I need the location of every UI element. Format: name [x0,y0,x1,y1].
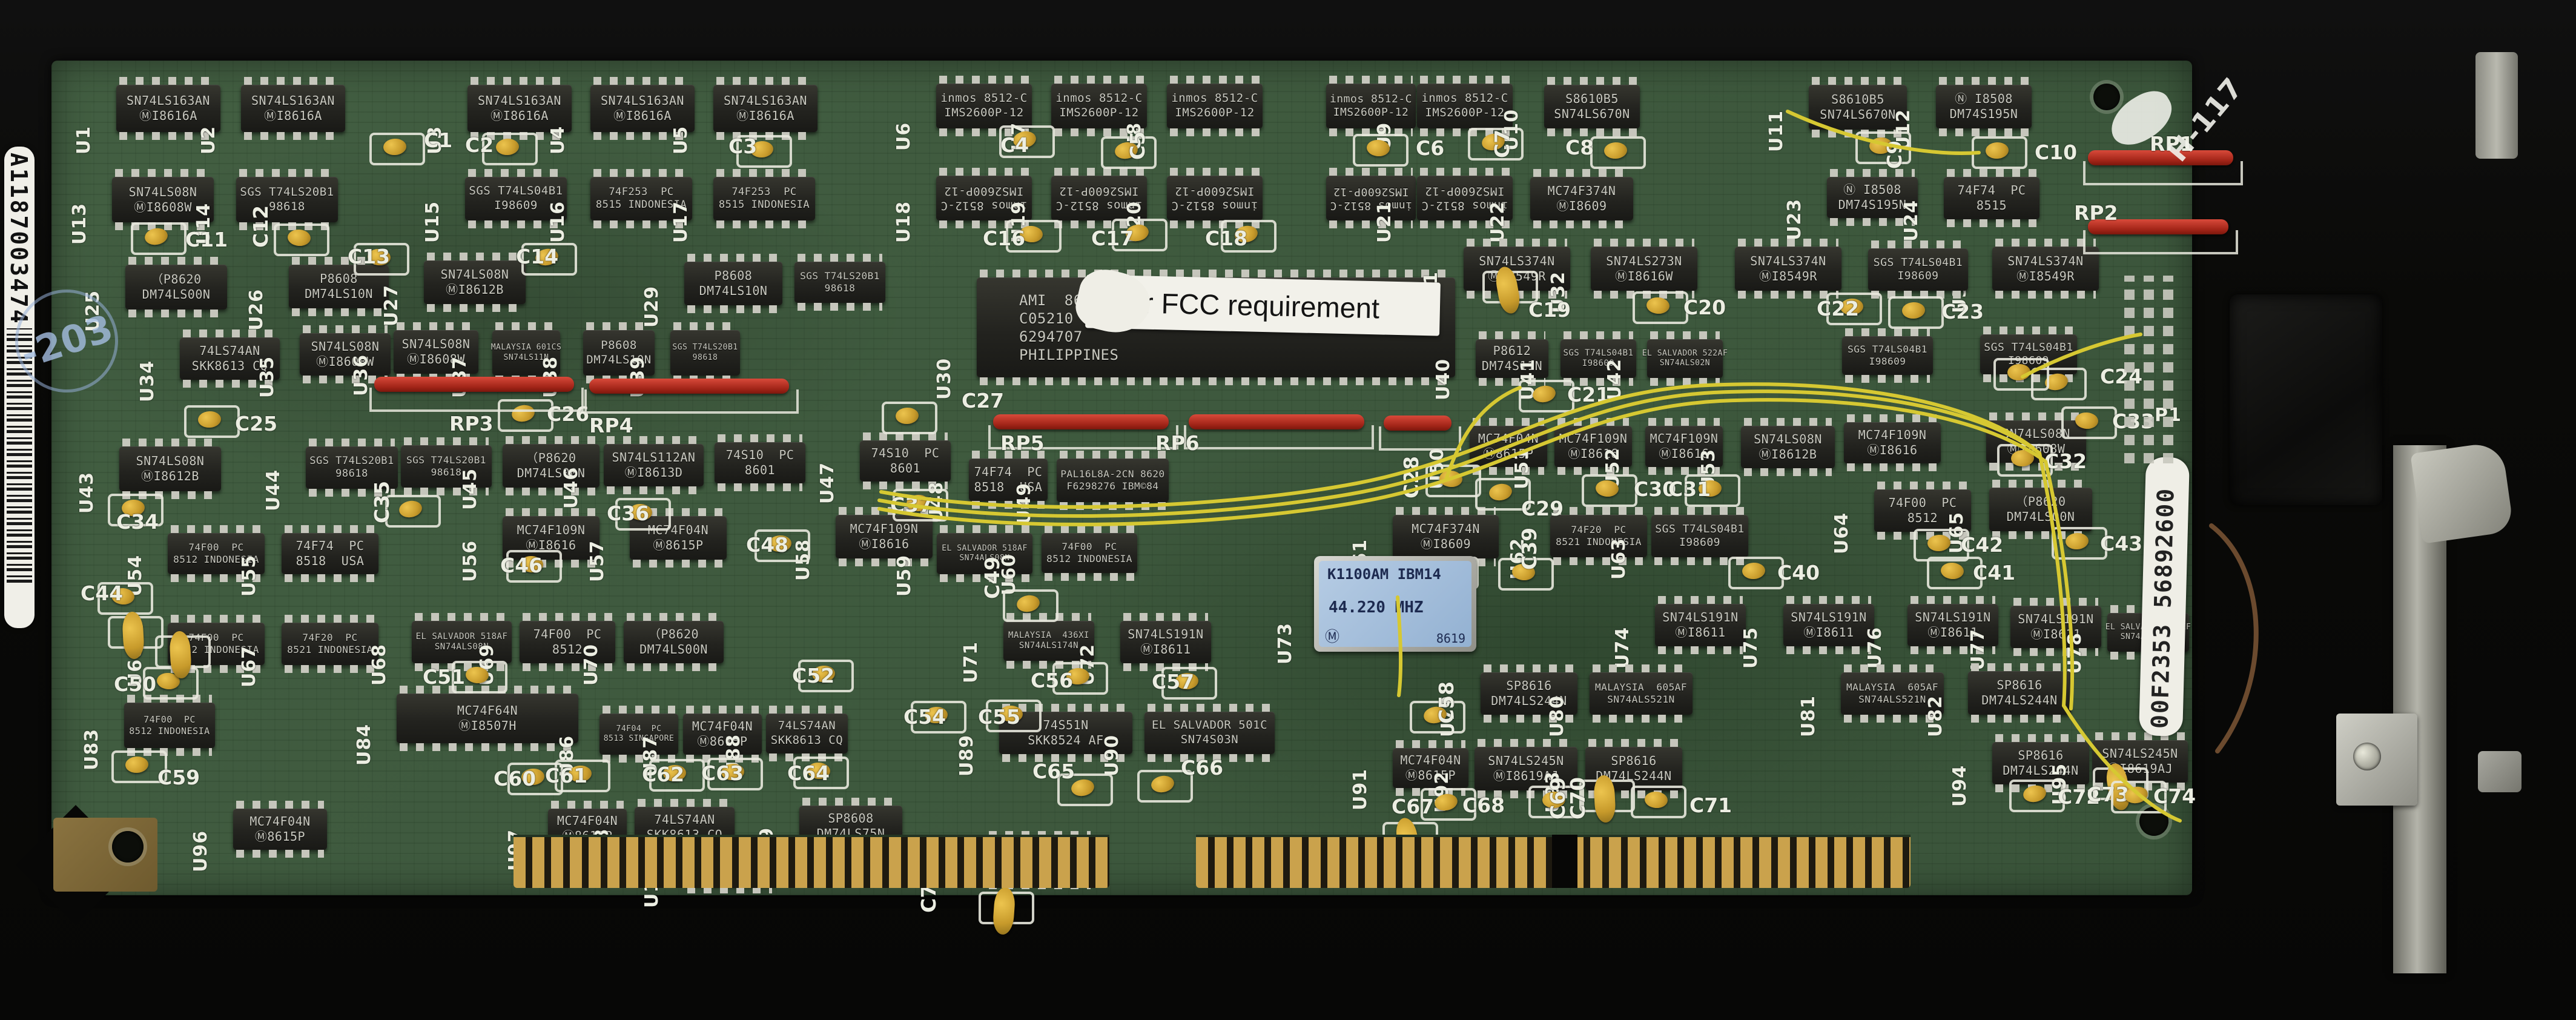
chip-markings: SN74LS163ANⓂI8616A [251,93,335,124]
chip-pins [506,436,596,444]
chip-markings: 74F74 PC8518 USA [296,538,365,569]
chip-markings: SN74LS08NⓂI8612B [136,454,205,484]
chip-text-line: 74LS74AN [778,719,836,734]
serial-number-label: 00F2353 56892600 [2139,457,2190,737]
chip-text-line: MC74F04N [692,719,753,734]
chip-text-line: ⓂI8609 [1556,199,1607,214]
chip-pins [1947,169,2036,177]
chip-text-line: MC74F64N [457,703,518,718]
chip-ref-designator: U68 [369,644,390,686]
chip-text-line: PAL16L8A-2CN 8620 [1060,468,1164,480]
chip-pins [1844,664,1941,672]
chip-text-line: SN74ALS521N [1858,694,1926,706]
chip-text-line: ⓂI8507H [458,718,517,734]
chip-text-line: MC74F04N [1478,431,1539,446]
chip-pins [1588,739,1679,747]
chip-text-line: 8513 SINGAPORE [604,734,675,744]
chip-pins [798,254,882,262]
chip-pins [1420,76,1510,84]
chip-text-line: SGS T74LS04B1 [1984,341,2073,355]
chip-markings: SN74LS163ANⓂI8616A [127,93,210,124]
cap-ref-designator: C35 [370,481,394,523]
chip-pins [769,706,845,714]
chip-text-line: EL SALVADOR 501C [1152,718,1267,733]
chip-pins [1871,240,1965,248]
chip-pins [1744,418,1832,426]
chip-text-line: IMS2600P-12 [1175,184,1254,198]
chip-markings: inmos 8512-CIMS2600P-12 [1330,93,1412,120]
chip-text-line: I98609 [1869,356,1906,368]
ic-chip: MC74F04NⓂ8615P [683,714,762,755]
chip-pins [285,665,375,673]
chip-pins [236,850,324,858]
chip-text-line: SGS T74LS20B1 [240,185,334,200]
chip-pins [1170,128,1260,136]
chip-text-line: SKK8613 CQ [771,734,843,748]
cap-ref-designator: C12 [249,205,272,248]
chip-pins [1971,715,2068,723]
chip-text-line: ⓂI8611 [1140,642,1191,657]
cap-ref-designator: C41 [1973,561,2015,585]
chip-pins [1830,169,1915,177]
chip-markings: SGS T74LS04B1I98609 [1848,343,1927,368]
chip-text-line: 74S10 PC [726,448,794,463]
chip-pins [171,525,262,533]
ic-chip: 74S10 PC8601 [715,442,805,483]
cap-ref-designator: C13 [348,245,390,268]
chip-text-line: I98609 [1679,536,1720,550]
chip-text-line: S8610B5 [1565,91,1619,107]
chip-text-line: ⓂI8609 [1421,537,1471,552]
cap-ref-designator: C5 [1126,131,1149,160]
chip-text-line: Ⓝ I8508 [1955,91,2013,107]
chip-pins [400,743,575,751]
rpack-ref-designator: RP3 [449,412,494,435]
chip-pins [638,799,732,807]
chip-pins [303,325,388,333]
chip-pins [2013,598,2098,606]
chip-ref-designator: U94 [1949,765,1970,807]
chip-ref-designator: U45 [460,468,481,510]
chip-pins [397,322,475,330]
chip-text-line: inmos 8512-C [1055,91,1142,106]
chip-markings: （P8620DM74LS00N [142,272,211,302]
ic-chip: 74F74 PC8515 [1944,177,2039,219]
chip-text-line: MC74F04N [557,813,618,829]
cap-ref-designator: C37 [890,493,933,517]
cap-ref-designator: C48 [746,533,788,557]
chip-text-line: SN74LS245N [1488,753,1564,769]
chip-text-line: SGS T74LS20B1 [406,454,486,466]
chip-text-line: SN74LS163AN [127,93,210,108]
chip-text-line: MALAYSIA 436XI [1008,631,1089,641]
chip-text-line: 98618 [269,200,305,214]
chip-pins [244,77,342,85]
cap-ref-designator: C68 [1462,793,1505,817]
chip-pins [239,169,335,177]
chip-pins [633,560,724,568]
chip-markings: 74F74 PC8515 [1958,183,2026,213]
chip-text-line: SP8616 [1506,678,1551,694]
chip-pins [1420,168,1510,176]
chip-text-line: ⓂI8616W [1615,269,1673,284]
chip-pins [1648,418,1720,426]
chip-text-line: 74F00 PC [188,541,243,554]
chip-text-line: ⓂI8616A [613,108,672,124]
chip-pins [1847,463,1938,471]
cap-ref-designator: C34 [116,510,159,534]
chip-markings: SN74LS112ANⓂI8613D [612,450,696,480]
chip-pins [607,486,701,494]
ic-chip: （P8620DM74LS00N [503,444,599,488]
ic-chip: MC74F374NⓂI8609 [1530,177,1633,220]
ic-chip: SN74LS191NⓂI8611 [1120,621,1211,663]
cap-ref-designator: C65 [1032,760,1075,783]
chip-ref-designator: U67 [239,646,260,687]
chip-pins [1473,418,1544,426]
chip-ref-designator: U46 [561,467,582,509]
chip-pins [593,169,689,177]
chip-pins [586,322,652,330]
chip-ref-designator: U18 [893,201,914,243]
chip-text-line: C05210 [1019,310,1074,328]
chip-text-line: Ⓜ8615P [653,538,703,553]
ic-chip: 74F74 PC8518 USA [969,459,1048,501]
corner-gold-pad [53,818,157,892]
chip-pins [1054,76,1144,84]
chip-text-line: SN74LS08N [1754,432,1822,447]
chip-text-line: 8518 USA [296,554,365,569]
chip-ref-designator: U21 [1374,201,1395,243]
cap-ref-designator: C23 [1941,300,1984,323]
chip-text-line: SGS T74LS20B1 [309,455,394,468]
chip-ref-designator: U29 [641,286,662,328]
chip-pins [1553,507,1644,515]
chip-pins [119,77,217,85]
ic-chip: SGS T74LS20B198618 [670,330,740,376]
connector-thumbscrew [2478,751,2522,792]
chip-pins [1329,220,1413,228]
chip-text-line: 8515 [1977,198,2007,213]
cap-ref-designator: C36 [607,502,649,525]
ic-chip: MALAYSIA 605AFSN74ALS521N [1590,672,1693,715]
chip-text-line: SGS T74LS20B1 [672,343,738,353]
chip-pins [1650,378,1720,386]
ic-chip: inmos 8512-CIMS2600P-12 [1326,84,1416,128]
ic-chip: Ⓝ I8508DM74S195N [1936,85,2032,128]
ic-chip: inmos 8512-CIMS2600P-12 [1417,84,1513,128]
chip-pins [468,169,564,177]
ic-chip: SP8616DM74LS244N [1992,742,2089,784]
chip-ref-designator: U71 [960,641,982,683]
chip-text-line: SGS T74LS04B1 [1848,343,1927,356]
cap-ref-designator: C42 [1961,533,2003,557]
ic-chip: S8610B5SN74LS670N [1544,85,1640,128]
ic-chip: MC74F109NⓂI8616 [1844,422,1941,463]
chip-text-line: ⓂI8613D [625,465,683,480]
mounting-hole-bottom-left [112,831,144,863]
ic-chip: SGS T74LS04B1I98609 [1868,248,1968,291]
chip-text-line: inmos 8512-C [1171,198,1258,213]
chip-pins [415,613,509,621]
chip-pins [1845,328,1930,336]
chip-pins [1148,704,1272,712]
cap-ref-designator: C59 [157,766,200,789]
rpack-ref-designator: RP4 [589,414,633,437]
chip-ref-designator: U11 [1766,110,1787,152]
cap-ref-designator: C8 [1565,136,1594,159]
chip-ref-designator: U4 [547,126,569,154]
chip-pins [1847,414,1938,422]
chip-ref-designator: U24 [1901,200,1922,242]
chip-markings: SN74LS08NⓂI8612B [1754,432,1822,462]
chip-pins [122,439,218,446]
cap-ref-designator: C31 [1668,477,1711,501]
chip-markings: SN74LS163ANⓂI8616A [724,93,807,124]
chip-text-line: P8608 [601,339,637,353]
chip-pins [1650,331,1720,339]
chip-pins [183,330,277,337]
ic-chip: S8610B5SN74LS670N [1809,85,1907,130]
crystal-part-number: K1100AM IBM14 [1327,566,1441,583]
crystal-face: K1100AM IBM14 44.220 MHZ Ⓜ 8619 [1319,561,1471,647]
crystal-ref: U73 [1275,623,1296,664]
chip-text-line: MC74F374N [1412,522,1480,537]
ic-chip: 74LS74ANSKK8613 CQ [766,714,848,753]
cap-ref-designator: C17 [1091,227,1134,250]
chip-text-line: SN74LS08N [311,339,380,354]
chip-text-line: 74F20 PC [1571,524,1626,536]
chip-markings: SN74LS191NⓂI8611 [1662,610,1738,640]
chip-markings: SN74LS163ANⓂI8616A [601,93,684,124]
chip-text-line: DM74LS244N [1981,693,2057,708]
ic-chip: MC74F374NⓂI8609 [1393,515,1499,558]
resistor-pack [1189,414,1364,429]
chip-pins [1564,331,1633,339]
chip-ref-designator: U57 [587,540,608,582]
chip-text-line: IMS2600P-12 [1059,184,1138,198]
chip-pins [128,257,224,265]
chip-text-line: 8601 [890,461,920,476]
chip-text-line: MC74F374N [1548,184,1616,199]
chip-ref-designator: U13 [69,203,90,245]
chip-markings: inmos 8512-CIMS2600P-12 [1171,184,1258,213]
chip-markings: SGS T74LS04B1I98609 [1655,523,1744,550]
chip-pins [1654,507,1745,515]
chip-text-line: DM74LS10N [305,286,373,302]
cap-ref-designator: C61 [545,764,587,787]
cap-ref-designator: C39 [1518,528,1541,570]
barcode-text: A1187003474 [5,153,32,325]
chip-text-line: SN74LS670N [1820,107,1895,122]
chip-text-line: ⓂI8616 [859,537,909,552]
chip-text-line: IMS2600P-12 [944,184,1023,198]
chip-text-line: Ⓝ I8508 [1843,182,1901,197]
chip-pins [506,508,596,516]
chip-pins [1983,326,2074,334]
chip-ref-designator: U44 [263,469,284,511]
chip-text-line: ⓂI8616A [139,108,197,124]
edge-connector-tab [1196,835,1911,888]
chip-ref-designator: U1 [73,126,94,154]
chip-markings: SN74LS374NⓂI8549R [2007,254,2083,284]
chip-text-line: MALAYSIA 601CS [491,343,562,353]
cap-ref-designator: C4 [1000,133,1029,157]
ic-chip: 74F253 PC8515 INDONESIA [713,177,815,220]
chip-text-line: 6294707 [1019,328,1083,346]
chip-ref-designator: U76 [1864,627,1886,669]
chip-ref-designator: U2 [198,126,219,154]
cap-ref-designator: C56 [1031,669,1073,692]
chip-pins [603,706,675,714]
chip-text-line: 98618 [335,468,368,480]
chip-text-line: 74F253 PC [609,186,673,199]
chip-text-line: ⓂI8611 [1675,625,1725,640]
ic-chip: MC74F04NⓂ8615P [233,809,327,850]
resistor-pack [993,414,1169,429]
ic-chip: SN74LS08NⓂI8612B [119,446,221,491]
chip-pins [1170,76,1260,84]
ic-chip: （P8620DM74LS00N [624,621,724,663]
cap-ref-designator: C32 [2044,449,2087,473]
chip-pins [718,483,802,491]
cap-ref-designator: C71 [1689,793,1732,817]
chip-pins [1479,331,1545,339]
cap-ref-designator: C10 [2035,141,2077,164]
chip-ref-designator: U96 [190,830,211,872]
gold-fingers [514,837,1109,888]
cap-ref-designator: C25 [235,412,277,435]
chip-markings: P8608DM74LS10N [699,268,768,299]
cap-ref-designator: C52 [792,664,834,687]
chip-pins [1877,482,1968,489]
ic-chip: SN74LS163ANⓂI8616A [590,85,695,132]
p1-header-pads [2124,276,2176,463]
chip-text-line: SN74LS112AN [612,450,696,465]
chip-markings: SGS T74LS20B198618 [309,455,394,481]
resistor-pack [589,379,789,394]
ic-chip: SN74LS163ANⓂI8616A [467,85,572,132]
chip-text-line: EL SALVADOR 522AF [1642,349,1728,359]
chip-pins [1658,646,1743,654]
chip-markings: SN74LS191NⓂI8611 [1791,610,1866,640]
chip-text-line: MC74F04N [249,814,310,829]
chip-text-line: ⓂI8608W [134,200,192,215]
ic-chip: SN74LS08NⓂI8608W [300,333,391,376]
cap-ref-designator: C51 [423,665,465,689]
ic-chip: SGS T74LS04B1I98609 [1842,336,1933,375]
ic-chip: SN74LS163ANⓂI8616A [241,85,345,132]
chip-text-line: ⓂI8616 [1867,443,1917,458]
chip-pins [285,525,375,533]
chip-pins [1971,663,2068,671]
chip-ref-designator: U30 [934,358,955,400]
chip-pins [495,322,557,330]
chip-ref-designator: U35 [257,356,278,398]
chip-text-line: SGS T74LS04B1 [1655,523,1744,537]
crystal-frequency: 44.220 MHZ [1329,598,1424,617]
chip-text-line: 8512 INDONESIA [129,726,210,737]
chip-pins [1947,219,2036,227]
chip-pins [1845,375,1930,383]
chip-text-line: ⓂI8616A [264,108,322,124]
chip-pins [1170,168,1260,176]
chip-markings: MC74F04NⓂ8615P [249,814,310,844]
chip-text-line: Ⓜ8615P [255,829,305,844]
ic-chip: 74F74 PC8518 USA [282,533,378,574]
chip-ref-designator: U75 [1740,627,1762,669]
chip-markings: inmos 8512-CIMS2600P-12 [1330,185,1412,212]
cap-ref-designator: C60 [494,767,536,790]
cap-ref-designator: C46 [500,554,543,577]
chip-pins [686,706,759,714]
ic-chip: PAL16L8A-2CN 8620F6298276 IBM©84 [1057,459,1169,502]
chip-markings: MC74F109NⓂI8616 [517,523,586,553]
chip-ref-designator: U82 [1925,695,1946,737]
cap-ref-designator: C55 [978,705,1020,729]
cap-ref-designator: C58 [1435,681,1458,724]
ic-chip: MC74F04NⓂ8615P [1393,748,1468,788]
chip-pins [1553,557,1644,565]
chip-text-line: ⓂI8549R [2016,269,2075,284]
ic-chip: SN74LS112ANⓂI8613D [604,444,704,486]
bracket-hook [2410,441,2514,544]
chip-pins [1478,739,1574,747]
cap-ref-designator: C43 [2100,532,2142,555]
chip-text-line: SGS T74LS04B1 [1874,256,1963,270]
ic-chip: 74F20 PC8521 INDONESIA [1550,515,1647,557]
chip-text-line: 74LS74AN [199,343,260,359]
chip-markings: MALAYSIA 605AFSN74ALS521N [1595,681,1687,706]
scanned-photo-isa-graphics-card: SN74LS163ANⓂI8616AU1SN74LS163ANⓂI8616AU2… [0,0,2576,1020]
chip-pins [1593,664,1689,672]
chip-pins [523,613,612,621]
chip-markings: 74F253 PC8515 INDONESIA [719,186,810,212]
chip-text-line: SN74LS374N [2007,254,2083,269]
cap-ref-designator: C21 [1567,383,1610,406]
ic-chip: SN74LS273NⓂI8616W [1591,247,1697,291]
cap-ref-designator: C70 [1566,777,1590,820]
chip-text-line: IMS2600P-12 [1425,184,1504,198]
ic-chip: 74S10 PC8601 [860,440,951,482]
cap-ref-designator: C40 [1777,561,1820,585]
chip-pins [716,220,812,228]
rpack-ref-designator: RP5 [1000,431,1045,455]
chip-text-line: 74F00 PC [144,714,196,726]
chip-text-line: SN74ALS02N [1660,359,1710,368]
chip-text-line: ⓂI8612B [141,469,199,484]
chip-text-line: 8515 INDONESIA [719,199,810,211]
chip-markings: Ⓝ I8508DM74S195N [1838,182,1907,213]
chip-text-line: inmos 8512-C [1330,198,1412,212]
chip-markings: inmos 8512-CIMS2600P-12 [1055,91,1142,121]
ic-chip: SN74LS163ANⓂI8616A [116,85,220,132]
chip-markings: inmos 8512-CIMS2600P-12 [1171,91,1258,121]
chip-ref-designator: U16 [547,201,569,243]
chip-pins [716,169,812,177]
chip-text-line: 8601 [745,463,775,478]
chip-text-line: PHILIPPINES [1019,346,1118,364]
chip-text-line: （P8620 [526,451,576,466]
chip-markings: EL SALVADOR 501CSN74S03N [1152,718,1267,747]
chip-text-line: 74S10 PC [871,446,940,461]
chip-pins [627,613,721,621]
ic-chip: P8608DM74LS10N [684,262,782,305]
cap-ref-designator: C1 [424,128,452,152]
cap-ref-designator: C50 [114,672,156,696]
chip-pins [939,76,1029,84]
chip-markings: SP8616DM74LS244N [1981,678,2057,708]
